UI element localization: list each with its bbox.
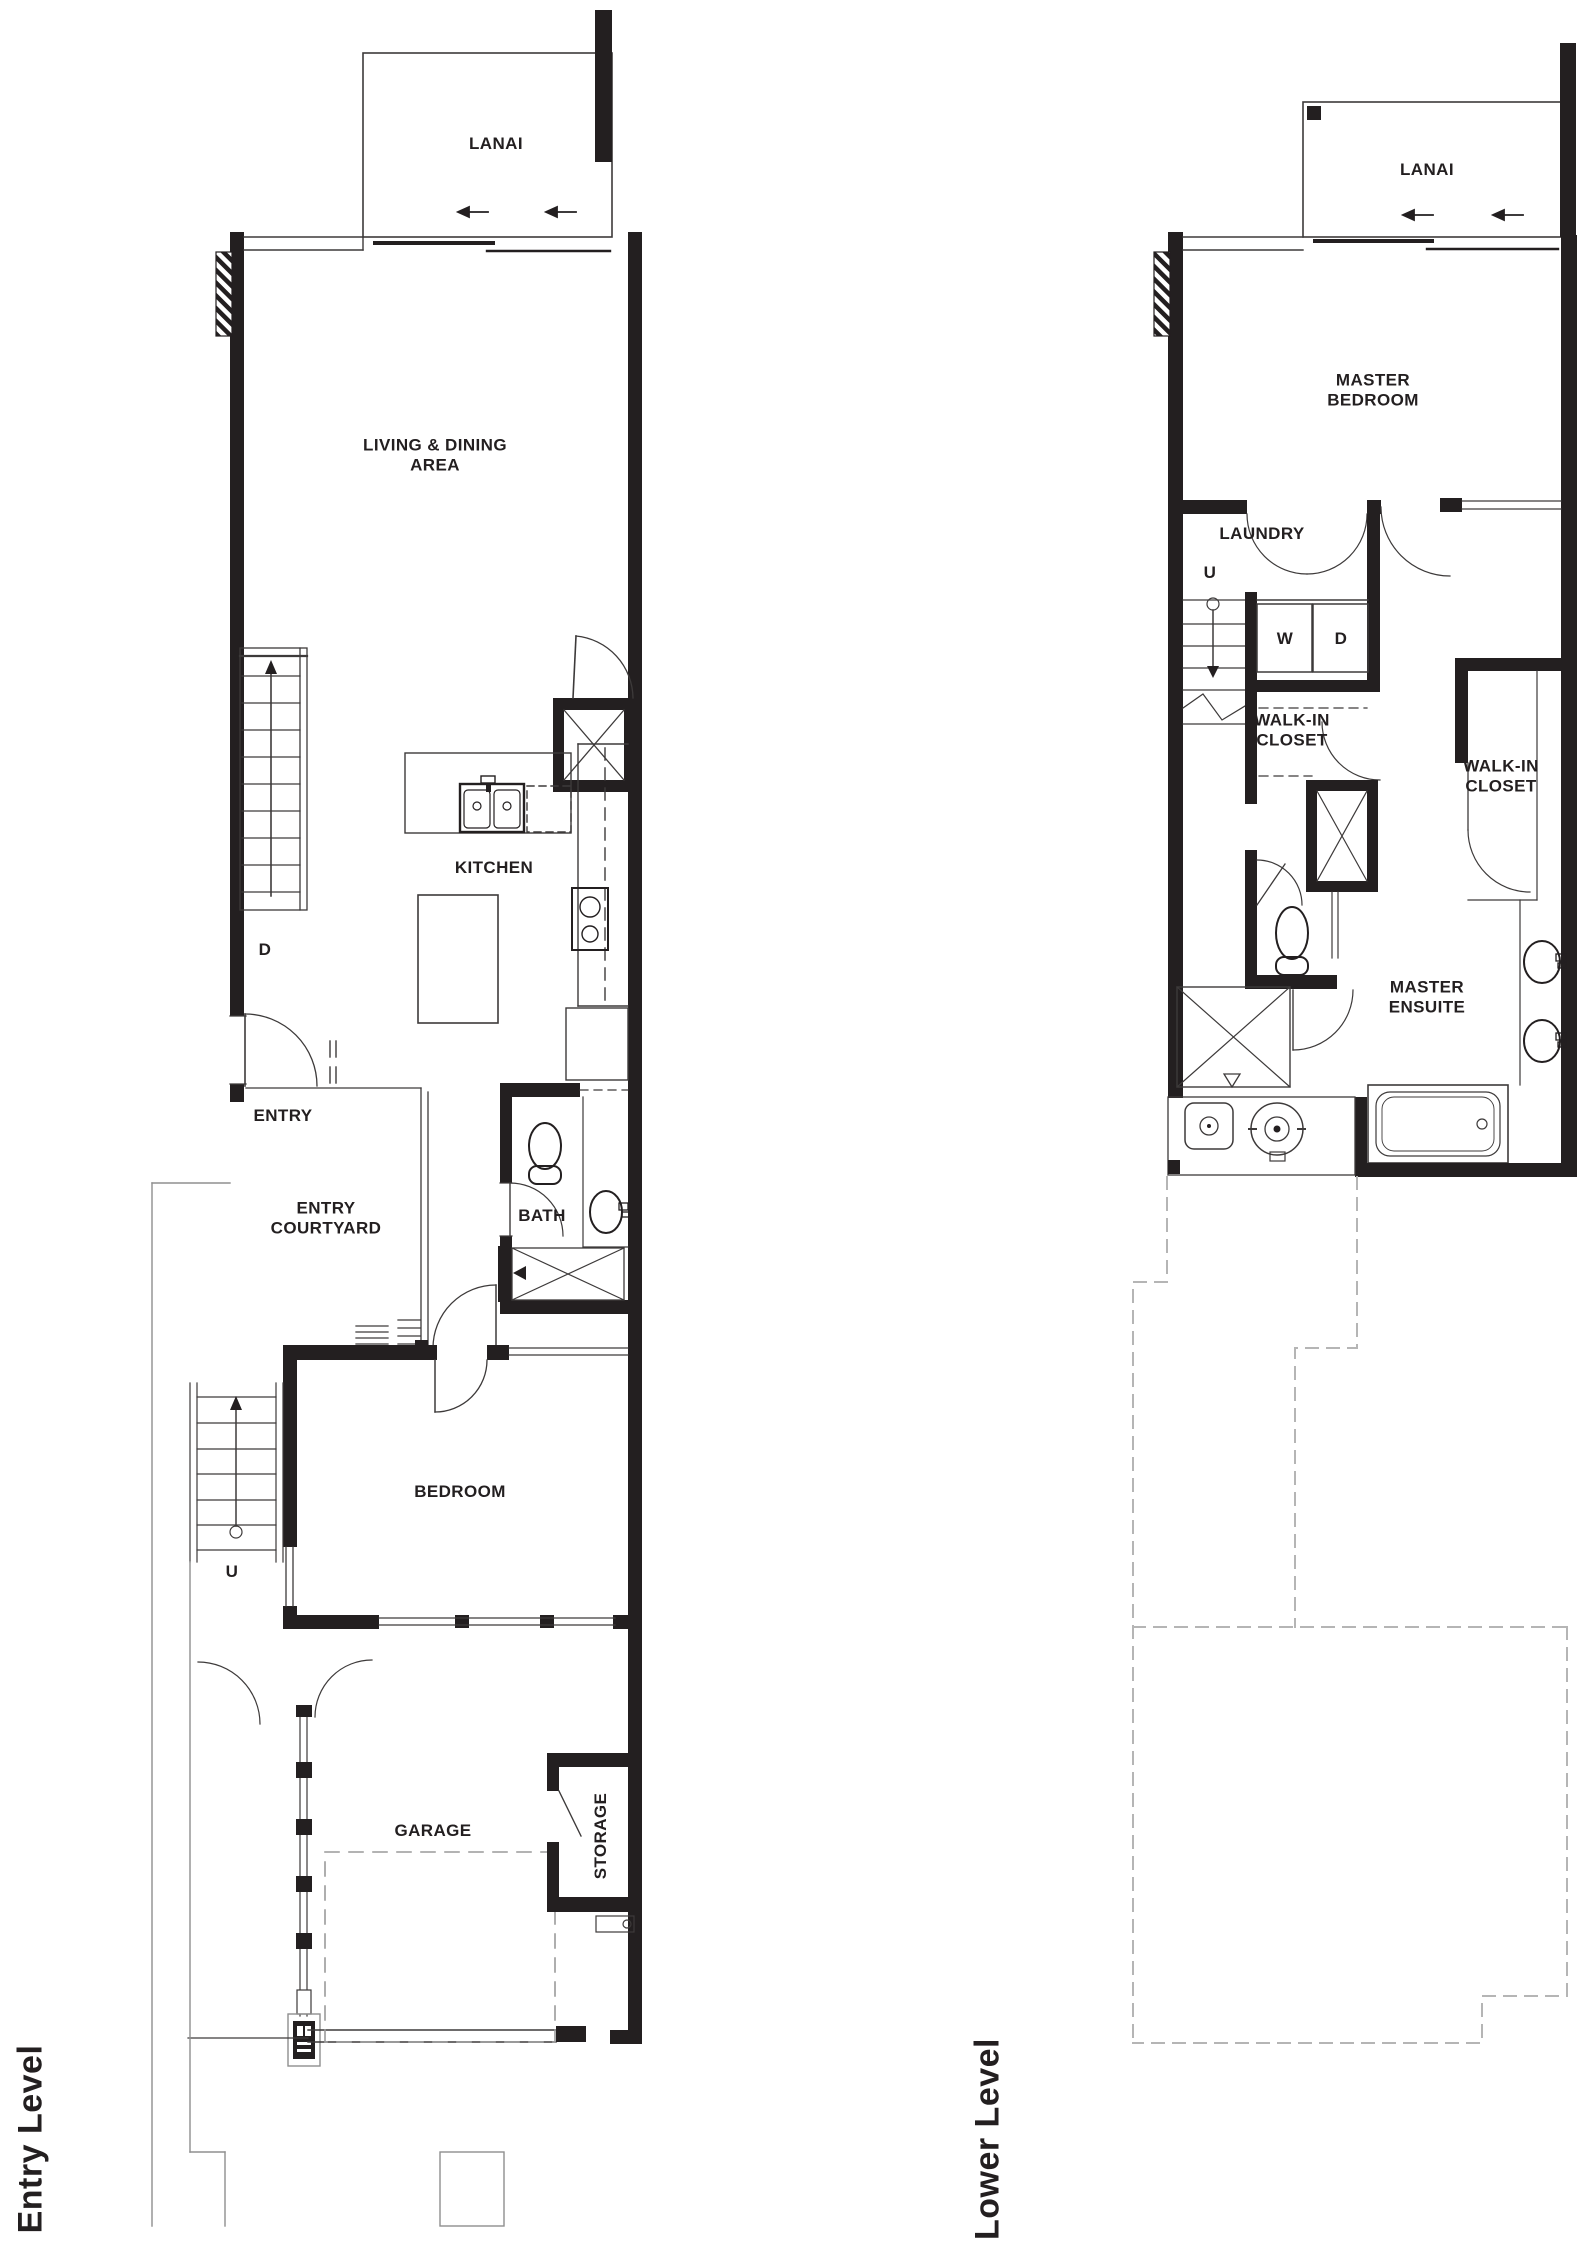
stair-wall bbox=[1245, 592, 1257, 804]
utility-counter bbox=[1168, 1097, 1355, 1175]
door-swing-arc bbox=[245, 1014, 317, 1086]
upper-floor-dashed-outline bbox=[1133, 1177, 1567, 2043]
door-swing-arc bbox=[315, 1660, 372, 1717]
room-label-bath: BATH bbox=[518, 1206, 566, 1226]
entry-lanai-outline bbox=[363, 10, 612, 251]
room-label-entry: ENTRY bbox=[254, 1106, 313, 1126]
entry-top-wall bbox=[244, 237, 363, 250]
bath-fixtures bbox=[500, 1090, 629, 1300]
shower-head-icon bbox=[513, 1266, 526, 1280]
sliding-door-arrow-icon bbox=[1403, 210, 1523, 220]
bathtub-fixture bbox=[1368, 1085, 1508, 1163]
master-ensuite bbox=[1177, 900, 1577, 1177]
door-swing-arc bbox=[1257, 860, 1302, 905]
bedroom-door bbox=[435, 1360, 487, 1412]
room-label-bedroom: BEDROOM bbox=[414, 1482, 506, 1502]
garage-door-wall bbox=[188, 2026, 628, 2044]
lower-level-plan bbox=[1133, 43, 1577, 2043]
stair-up-exterior bbox=[190, 1383, 283, 1562]
window-hatch bbox=[1154, 252, 1170, 336]
washer-label: W bbox=[1277, 629, 1293, 649]
gate-symbol bbox=[288, 2014, 320, 2066]
walkway-doors bbox=[198, 1660, 372, 1724]
vanity-sink-fixture bbox=[1524, 1020, 1560, 1062]
level-title-lower: Lower Level bbox=[969, 2038, 1008, 2240]
room-label-lanai-entry: LANAI bbox=[469, 134, 523, 154]
stair-up-lower bbox=[1183, 598, 1245, 724]
dryer-label: D bbox=[1335, 629, 1348, 649]
door-swing-arc bbox=[1293, 990, 1353, 1050]
floor-plan-sheet: LANAI LIVING & DINING AREA KITCHEN ENTRY… bbox=[0, 0, 1585, 2248]
toilet-fixture bbox=[1276, 907, 1308, 959]
room-label-lanai-lower: LANAI bbox=[1400, 160, 1454, 180]
room-label-walk-in-closet-left: WALK-IN CLOSET bbox=[1254, 711, 1330, 752]
floor-plan-drawing bbox=[0, 0, 1585, 2248]
stair-label-down: D bbox=[259, 940, 272, 960]
sliding-door-arrow-icon bbox=[458, 207, 576, 217]
lower-top-wall bbox=[1183, 237, 1303, 250]
entry-level-plan bbox=[152, 10, 642, 2226]
kitchen-sink-fixture bbox=[460, 776, 524, 832]
entry-exterior-walls bbox=[230, 232, 642, 2044]
toilet-fixture bbox=[529, 1123, 561, 1169]
door-leaf bbox=[1257, 864, 1285, 905]
door-swing-arc bbox=[433, 1285, 496, 1348]
room-label-kitchen: KITCHEN bbox=[455, 858, 533, 878]
pantry-closet bbox=[553, 636, 635, 792]
linen-closet bbox=[1306, 780, 1378, 892]
door-swing-arc bbox=[1307, 514, 1367, 574]
window-hatch bbox=[216, 252, 232, 336]
lot-boundary bbox=[152, 1183, 504, 2226]
room-label-laundry: LAUNDRY bbox=[1219, 524, 1304, 544]
door-swing-arc bbox=[1381, 507, 1450, 576]
wall-segment bbox=[1560, 43, 1576, 237]
stair-direction-arrow-icon bbox=[230, 1396, 242, 1410]
room-label-living-dining: LIVING & DINING AREA bbox=[363, 436, 507, 477]
room-label-entry-courtyard: ENTRY COURTYARD bbox=[271, 1199, 382, 1240]
refrigerator-fixture bbox=[566, 1008, 628, 1080]
washer-dryer-fixture bbox=[1257, 600, 1368, 672]
entry-door bbox=[230, 1014, 317, 1086]
bath-sink-fixture bbox=[590, 1191, 622, 1233]
door-swing-arc bbox=[1468, 830, 1530, 892]
kitchen-counters bbox=[405, 744, 628, 1080]
door-swing-arc bbox=[576, 636, 633, 698]
door-leaf bbox=[559, 1791, 581, 1836]
room-label-master-bedroom: MASTER BEDROOM bbox=[1327, 371, 1419, 412]
door-swing-arc bbox=[198, 1662, 260, 1724]
wall-segment bbox=[595, 10, 612, 162]
garage-parking-dashed-outline bbox=[325, 1852, 555, 2042]
room-label-master-ensuite: MASTER ENSUITE bbox=[1389, 978, 1465, 1019]
bath-walls bbox=[498, 1083, 628, 1314]
wall-break-ticks bbox=[330, 1041, 336, 1083]
room-label-storage: STORAGE bbox=[591, 1793, 611, 1880]
door-swing-arc bbox=[435, 1360, 487, 1412]
driveway-fence bbox=[288, 1705, 320, 2066]
stair-label-up-lower: U bbox=[1204, 563, 1217, 583]
level-title-entry: Entry Level bbox=[12, 2045, 51, 2234]
stair-label-up: U bbox=[226, 1562, 239, 1582]
door-swing-arc bbox=[1322, 722, 1380, 780]
room-label-garage: GARAGE bbox=[394, 1821, 471, 1841]
stair-down bbox=[240, 648, 307, 910]
stair-direction-arrow-icon bbox=[265, 660, 277, 674]
shower-drain-icon bbox=[1224, 1074, 1240, 1087]
water-heater-fixture bbox=[1249, 1103, 1305, 1161]
lower-lanai-outline bbox=[1303, 43, 1576, 249]
stair-direction-arrow-icon bbox=[1207, 666, 1219, 678]
room-label-walk-in-closet-right: WALK-IN CLOSET bbox=[1463, 757, 1539, 798]
laundry-wall bbox=[1367, 514, 1380, 692]
vanity-sink-fixture bbox=[1524, 941, 1560, 983]
kitchen-island bbox=[418, 895, 498, 1023]
